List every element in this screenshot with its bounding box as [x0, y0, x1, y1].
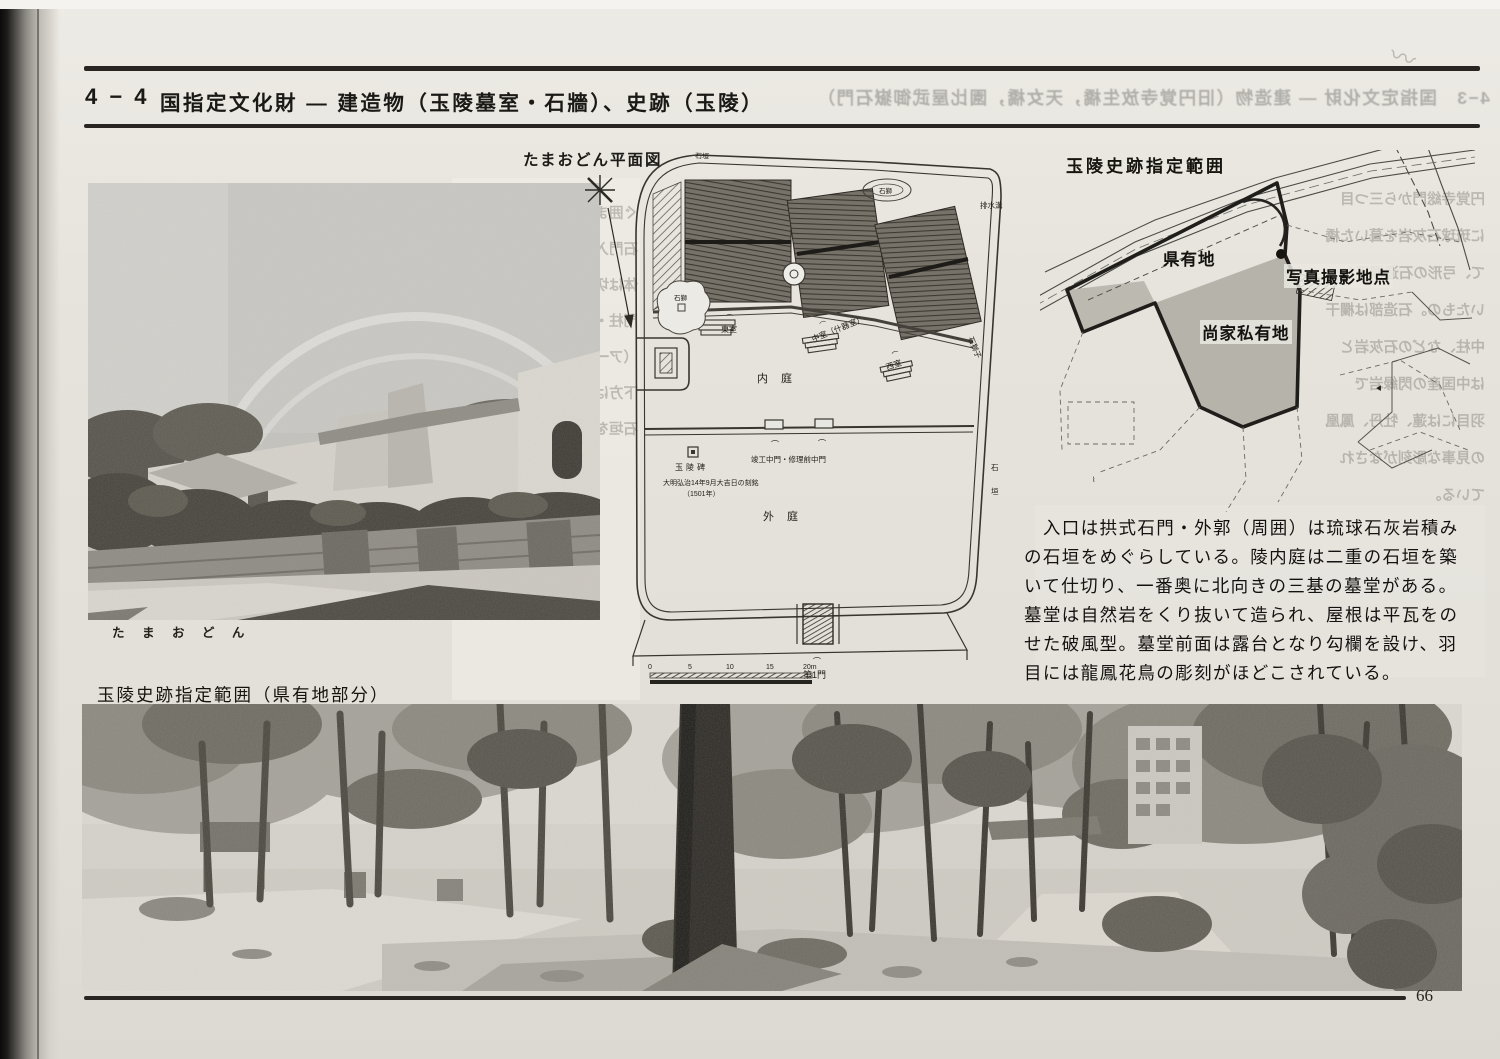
svg-text:⛰: ⛰: [1375, 384, 1384, 393]
plan-scale-bar: 0 5 10 15 20m: [648, 664, 817, 684]
plan-label-inner-court: 内 庭: [757, 371, 797, 385]
plan-label-west-chamber: 西室: [885, 357, 903, 371]
photo-park: [82, 704, 1462, 991]
plan-label-stone-wall-right-a: 石: [991, 463, 999, 472]
header-rule-top: [84, 66, 1480, 71]
footer-rule: [84, 996, 1406, 1000]
plan-label-stone-lion-small: 石獅: [674, 293, 688, 302]
map-label-photo-point: 写真撮影地点: [1284, 264, 1393, 288]
plan-label-middle-gates: 竣工中門・修理前中門: [751, 454, 826, 464]
plan-label-stone-lion-oval: 石獅: [879, 186, 893, 195]
description-line: いて仕切り、一番奥に北向きの三基の墓堂がある。: [1024, 572, 1490, 601]
plan-monument-year: （1501年）: [683, 489, 720, 498]
photo-park-image: [82, 704, 1462, 991]
scan-gutter-line: [37, 0, 39, 1059]
plan-gate-mark-mid2: ⌒: [818, 439, 826, 448]
map-label-prefectural-land: 県有地: [1163, 246, 1216, 270]
svg-text:5: 5: [688, 664, 692, 671]
header-rule-bottom: [84, 124, 1480, 128]
plan-label-east-chamber: 東室: [721, 324, 737, 334]
photo-tamaudun-caption: た ま お ど ん: [112, 622, 251, 641]
plan-drawing: 石獅 石獅 石垣 排水溝 ⌒ 東室 ⌒ 中室（什器室） ⌒ 西室 石獅子 内 庭…: [575, 142, 1040, 704]
section-number: 4 − 4: [85, 84, 150, 110]
scan-gutter-shadow: [0, 0, 60, 1059]
page-title: 国指定文化財 ― 建造物（玉陵墓室・石牆）、史跡（玉陵）: [160, 86, 764, 116]
plan-gate-mark-east: ⌒: [726, 314, 733, 322]
plan-label-stone-wall-top: 石垣: [695, 151, 709, 161]
showthrough-header-text: 4−3 国指定文化財 ― 建造物（旧円覚寺放生橋，天女橋，園比屋武御嶽石門）: [698, 85, 1490, 110]
page-number: 66: [1416, 986, 1433, 1006]
scanned-document-page: { "page_number": "66", "header": { "sect…: [0, 0, 1500, 1059]
description-line: 目には龍鳳花鳥の彫刻がほどこされている。: [1024, 659, 1490, 688]
description-line: の石垣をめぐらしている。陵内庭は二重の石垣を築: [1024, 543, 1490, 572]
svg-text:20m: 20m: [803, 664, 817, 671]
description-line: 墓堂は自然岩をくり抜いて造られ、屋根は平瓦をの: [1024, 601, 1490, 630]
description-line: せた破風型。墓堂前面は露台となり勾欄を設け、羽: [1024, 630, 1490, 659]
compass-star: [585, 175, 633, 327]
plan-label-middle-chamber: 中室（什器室）: [810, 314, 866, 344]
plan-monument-note: 大明弘治14年9月大吉日の刻銘: [663, 478, 759, 487]
plan-drawing-svg: 石獅 石獅 石垣 排水溝 ⌒ 東室 ⌒ 中室（什器室） ⌒ 西室 石獅子 内 庭…: [575, 142, 1040, 704]
photo-tamaudun: [88, 183, 600, 620]
plan-label-monument: 玉陵碑: [675, 462, 708, 472]
svg-text:0: 0: [648, 664, 652, 671]
svg-text:10: 10: [726, 664, 734, 671]
scan-top-edge: [0, 0, 1500, 9]
map-label-private-land: 尚家私有地: [1200, 320, 1292, 344]
plan-label-drain: 排水溝: [980, 200, 1003, 210]
scan-scribble-mark: 〰︎: [1384, 35, 1421, 79]
svg-text:⌇: ⌇: [1092, 476, 1095, 484]
plan-label-outer-court: 外 庭: [763, 509, 803, 523]
plan-gate-mark-mid1: ⌒: [771, 440, 779, 449]
svg-text:15: 15: [766, 664, 774, 671]
description-line: 入口は拱式石門・外郭（周囲）は琉球石灰岩積み: [1024, 514, 1490, 543]
plan-label-stone-wall-right-b: 垣: [991, 486, 999, 496]
photo-tamaudun-image: [88, 183, 600, 620]
description-paragraph: 入口は拱式石門・外郭（周囲）は琉球石灰岩積み の石垣をめぐらしている。陵内庭は二…: [1024, 514, 1490, 688]
